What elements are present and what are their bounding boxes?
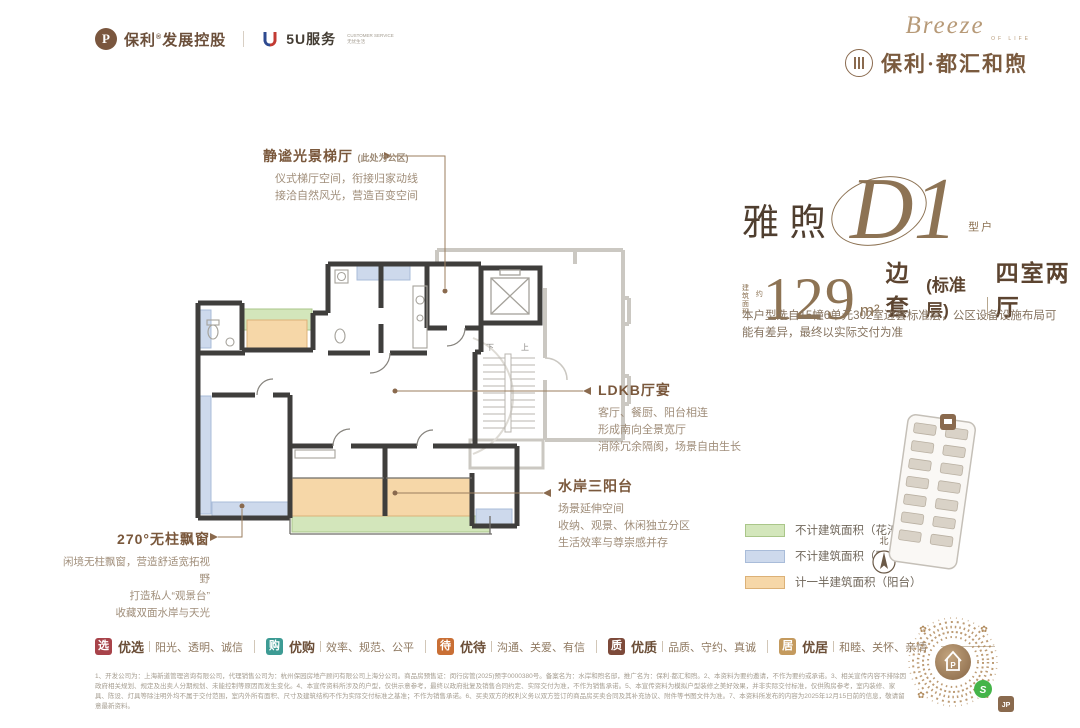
ldkb-line2: 形成南向全景宽厅 — [598, 422, 741, 439]
badges-divider — [254, 640, 255, 653]
badge-youzhi-desc: 品质、守约、真诚 — [668, 639, 756, 655]
lobby-title: 静谧光景梯厅 — [263, 148, 353, 164]
developer-logo-group: P 保利®发展控股 5U服务 CUSTOMER SERVICE 无忧生活 — [95, 28, 394, 50]
bay-window-line3: 收藏双面水岸与天光 — [58, 605, 210, 622]
5u-logo-icon — [261, 30, 279, 48]
fixtures — [207, 270, 427, 458]
unit-note: 本户型选自15幢6单元302室边套标准层，公区设备设施布局可能有差异，最终以实际… — [742, 308, 1062, 342]
service-badges-row: 选 优选 阳光、透明、诚信 购 优购 效率、规范、公平 待 优待 沟通、关爱、有… — [95, 637, 995, 656]
badge-title-divider — [833, 641, 834, 652]
lobby-desc: 仪式梯厅空间，衔接归家动线 接洽自然风光，营造百变空间 — [275, 171, 418, 205]
badge-title-divider — [491, 641, 492, 652]
stair-down-label: 下 — [486, 343, 494, 352]
5u-service-text: 5U服务 — [286, 29, 336, 49]
balcony-desc: 场景延伸空间 收纳、观景、休闲独立分区 生活效率与尊崇感并存 — [558, 501, 690, 552]
bay-window-line2: 打造私人“观景台” — [58, 588, 210, 605]
badge-yougou-icon: 购 — [266, 638, 283, 655]
lobby-line1: 仪式梯厅空间，衔接归家动线 — [275, 171, 418, 188]
badge-youxuan-desc: 阳光、透明、诚信 — [155, 639, 243, 655]
badge-youxuan-title: 优选 — [118, 637, 144, 656]
type-char-2: 型 — [966, 221, 979, 234]
unit-series: 雅煦 — [742, 174, 836, 246]
legal-disclaimer: 1、开发公司为：上海新道管理咨询有限公司，代理销售公司为：杭州保园房地产顾问有限… — [95, 672, 907, 712]
legend-swatch-green — [745, 524, 785, 537]
annotation-lobby: 静谧光景梯厅 (此处为公区) 仪式梯厅空间，衔接归家动线 接洽自然风光，营造百变… — [263, 146, 418, 205]
5u-sub-cn: 无忧生活 — [347, 39, 394, 45]
annotation-bay-window: 270°无柱飘窗 闲境无柱飘窗，营造舒适宽拓视野 打造私人“观景台” 收藏双面水… — [58, 529, 210, 622]
ldkb-desc: 客厅、餐厨、阳台相连 形成南向全景宽厅 消除冗余隔阂，场景自由生长 — [598, 405, 741, 456]
annotation-ldkb: LDKB厅宴 客厅、餐厨、阳台相连 形成南向全景宽厅 消除冗余隔阂，场景自由生长 — [598, 380, 741, 456]
svg-text:✿: ✿ — [919, 624, 927, 634]
bay-window-line1: 闲境无柱飘窗，营造舒适宽拓视野 — [58, 554, 210, 588]
badge-yougou-title: 优购 — [289, 637, 315, 656]
mini-program-qr-stamp: ✿✿✿✿ P S JP — [905, 612, 1017, 717]
site-key-map — [878, 404, 990, 576]
badge-youdai-title: 优待 — [460, 637, 486, 656]
badge-youdai-desc: 沟通、关爱、有信 — [497, 639, 585, 655]
badge-youzhi-icon: 质 — [608, 638, 625, 655]
bay-window-title: 270°无柱飘窗 — [58, 529, 210, 549]
area-prefix-1: 建筑 — [742, 285, 754, 301]
badge-youju-icon: 居 — [779, 638, 796, 655]
balcony-line3: 生活效率与尊崇感并存 — [558, 535, 690, 552]
badge-youzhi-title: 优质 — [631, 637, 657, 656]
project-seal-icon — [845, 49, 873, 77]
badges-divider — [596, 640, 597, 653]
qr-center-glyph: P — [950, 661, 956, 670]
badge-yougou-desc: 效率、规范、公平 — [326, 639, 414, 655]
ldkb-title: LDKB厅宴 — [598, 380, 741, 400]
project-name-row: 保利·都汇和煦 — [845, 48, 1045, 78]
unit-title: 雅煦 D1 户型 — [742, 166, 992, 254]
ldkb-line1: 客厅、餐厨、阳台相连 — [598, 405, 741, 422]
legend-label-balcony: 计一半建筑面积（阳台） — [795, 574, 922, 590]
badge-title-divider — [320, 641, 321, 652]
project-name: 保利·都汇和煦 — [881, 48, 1028, 78]
balcony-line1: 场景延伸空间 — [558, 501, 690, 518]
elevator-shaft — [491, 270, 529, 314]
annotation-balcony: 水岸三阳台 场景延伸空间 收纳、观景、休闲独立分区 生活效率与尊崇感并存 — [558, 476, 690, 552]
5u-service-subtext: CUSTOMER SERVICE 无忧生活 — [347, 33, 394, 45]
ldkb-line3: 消除冗余隔阂，场景自由生长 — [598, 439, 741, 456]
badge-title-divider — [662, 641, 663, 652]
stair-up-label: 上 — [521, 343, 529, 352]
wechat-s-glyph: S — [980, 685, 987, 696]
bay-window-desc: 闲境无柱飘窗，营造舒适宽拓视野 打造私人“观景台” 收藏双面水岸与天光 — [58, 554, 210, 622]
balcony-title: 水岸三阳台 — [558, 476, 690, 496]
svg-text:✿: ✿ — [980, 624, 988, 634]
poly-suffix: 发展控股 — [162, 32, 226, 49]
unit-type-label: 户型 — [962, 187, 992, 234]
badge-youxuan-icon: 选 — [95, 638, 112, 655]
balcony-line2: 收纳、观景、休闲独立分区 — [558, 518, 690, 535]
badge-youju-title: 优居 — [802, 637, 828, 656]
badge-youdai-icon: 待 — [437, 638, 454, 655]
badges-divider — [767, 640, 768, 653]
poly-circle-icon: P — [95, 28, 117, 50]
type-char-1: 户 — [979, 221, 992, 234]
poly-brand: 保利 — [124, 32, 156, 49]
header-divider — [243, 31, 244, 47]
badges-divider — [425, 640, 426, 653]
jp-stamp-label: JP — [1002, 702, 1011, 709]
lobby-line2: 接洽自然风光，营造百变空间 — [275, 188, 418, 205]
lobby-suffix: (此处为公区) — [357, 153, 408, 163]
unit-code: D1 — [836, 166, 962, 254]
legend-swatch-orange — [745, 576, 785, 589]
legend-swatch-blue — [745, 550, 785, 563]
badge-title-divider — [149, 641, 150, 652]
poly-brand-text: 保利®发展控股 — [124, 29, 226, 50]
svg-text:✿: ✿ — [917, 690, 925, 700]
project-brand-group: Breeze OF LIFE 保利·都汇和煦 — [845, 12, 1045, 78]
stair-lobby-arc — [473, 338, 513, 454]
